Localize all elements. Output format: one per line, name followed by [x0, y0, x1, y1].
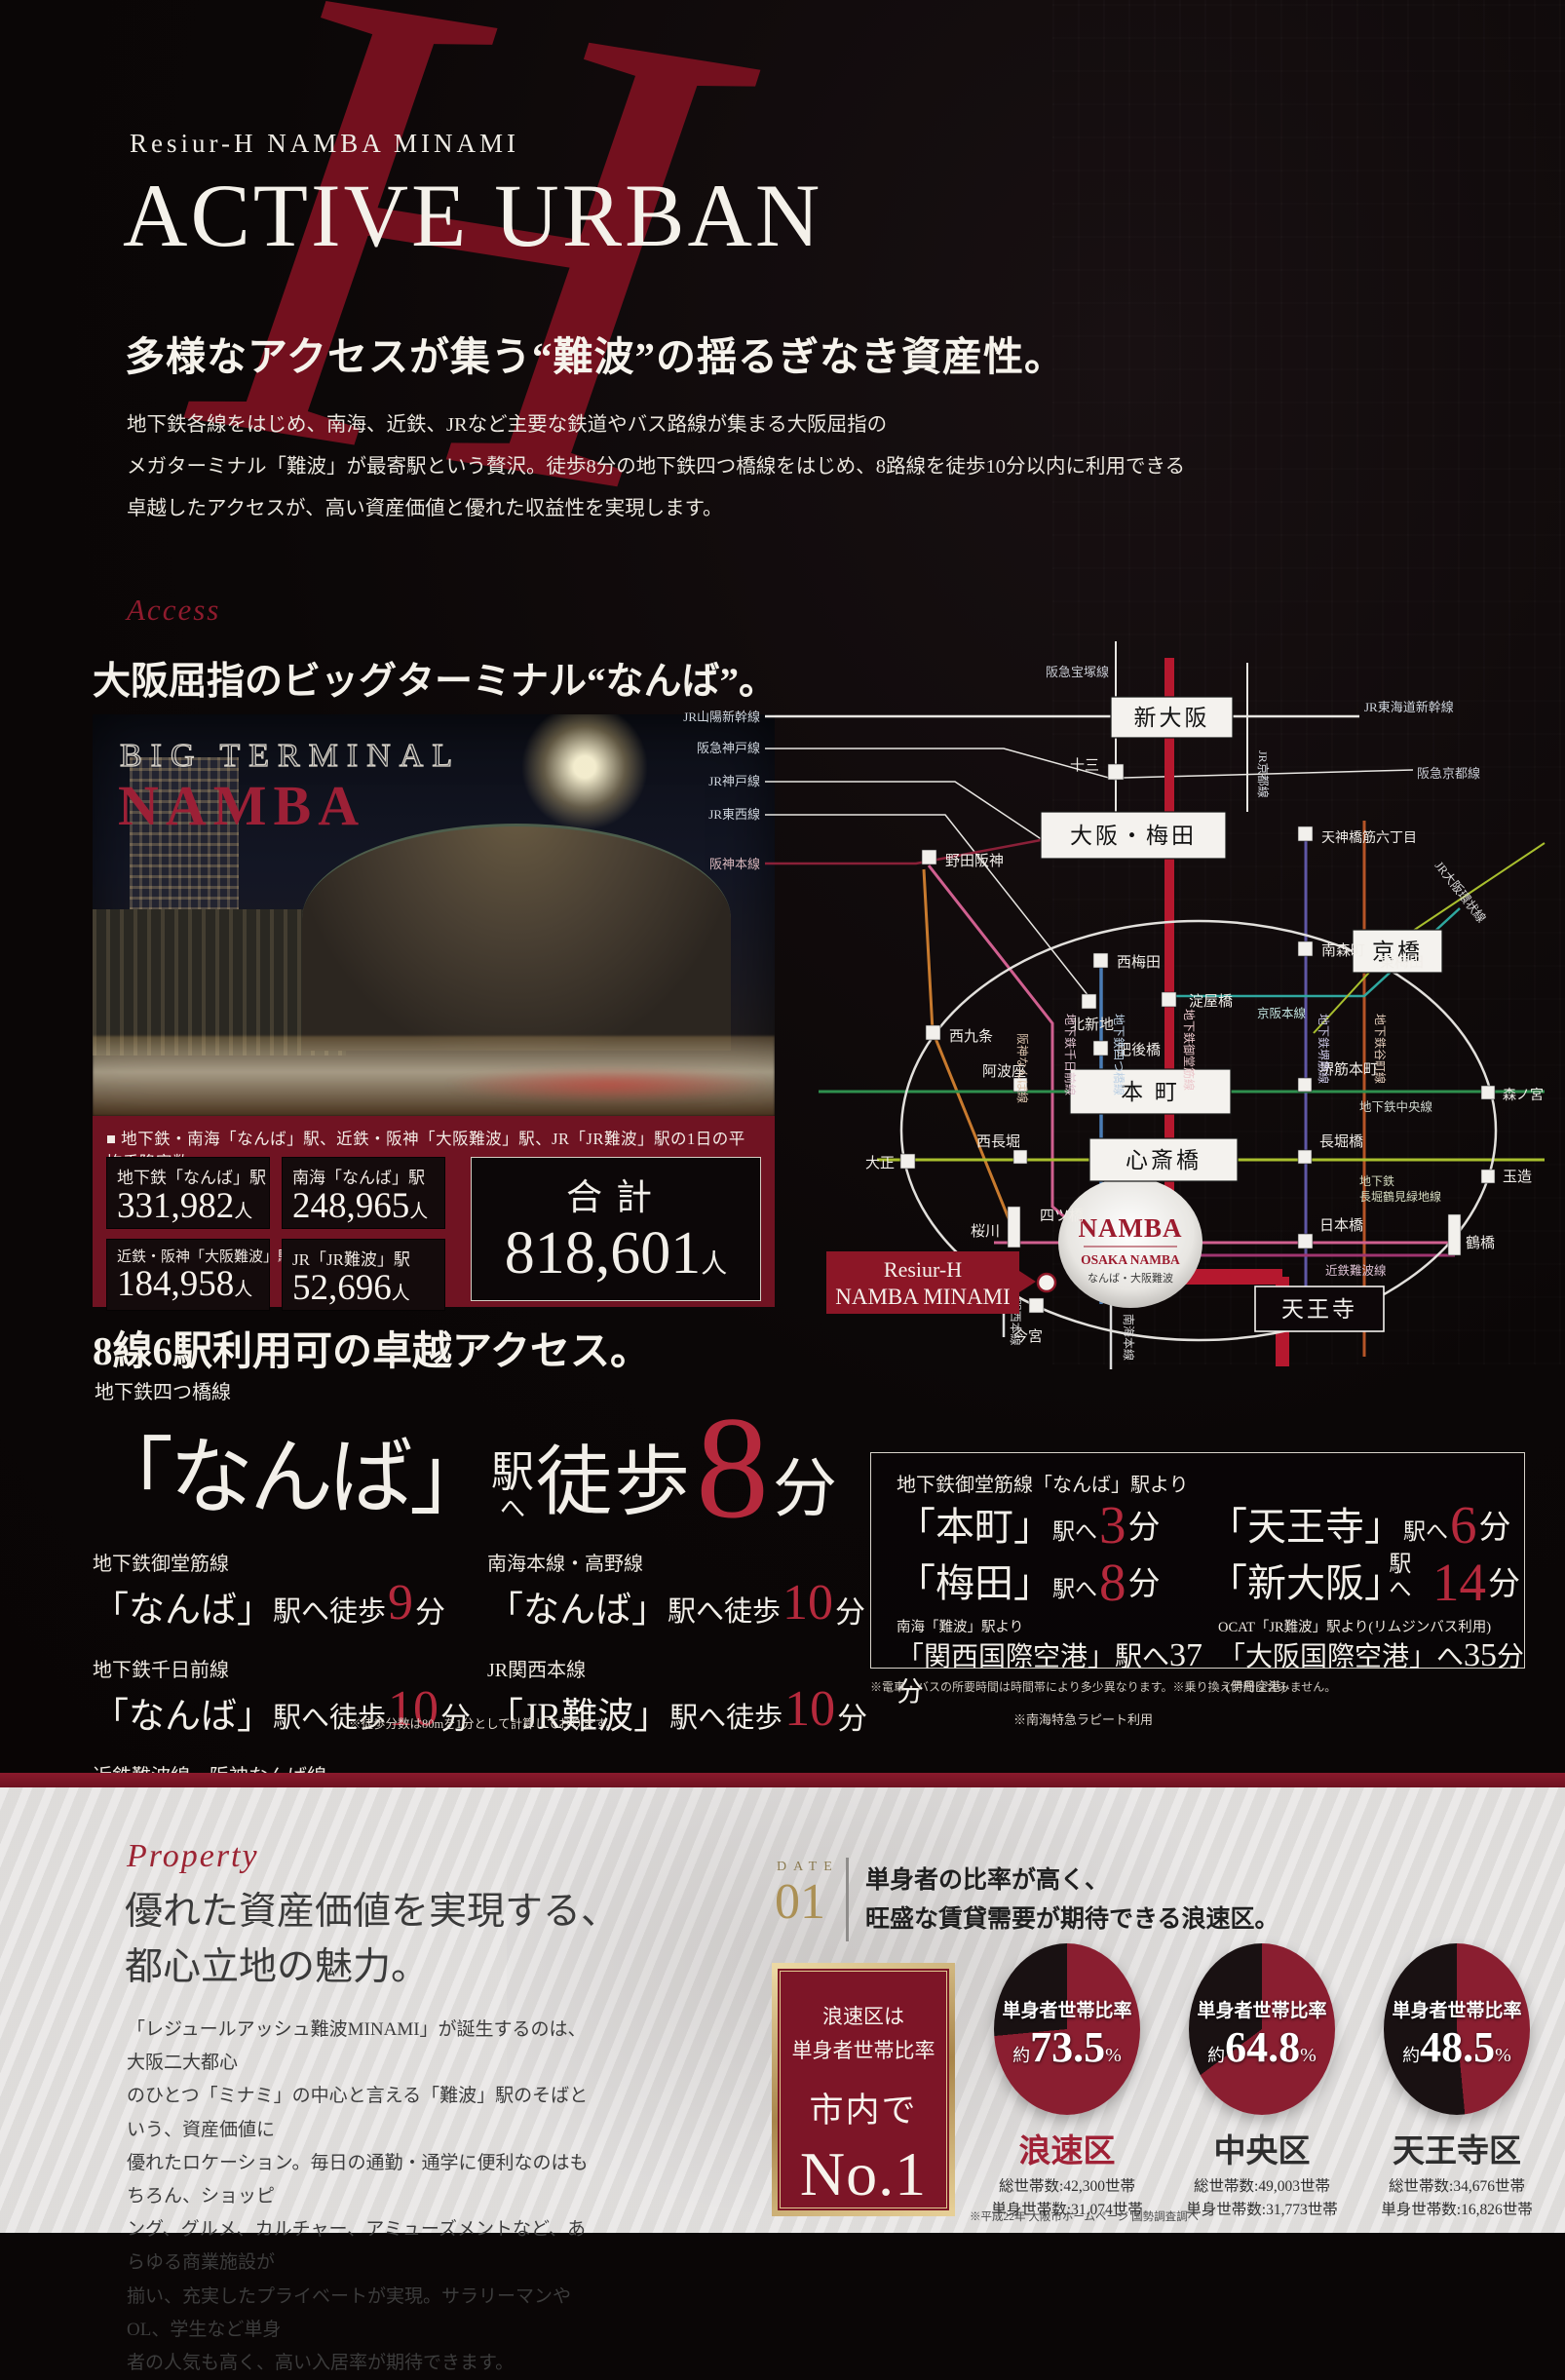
single-households: 単身世帯数:16,826世帯	[1381, 2202, 1532, 2218]
main-walk-toho: 徒歩	[536, 1421, 692, 1530]
svg-text:NAMBA MINAMI: NAMBA MINAMI	[835, 1285, 1011, 1309]
pie-value: 64.8	[1225, 2023, 1300, 2071]
pie-chart: 単身者世帯比率 約73.5%	[994, 1943, 1140, 2115]
walk-item-midosuji: 地下鉄御堂筋線 「なんば」駅へ徒歩9分	[93, 1548, 477, 1629]
svg-text:心斎橋: 心斎橋	[1126, 1148, 1202, 1172]
walk-note: ※徒歩分数は80mを1分として計算しております。	[349, 1713, 618, 1732]
total-households: 総世帯数:49,003世帯	[1194, 2178, 1330, 2195]
dest-min: 3	[1099, 1501, 1126, 1550]
dest-min: 8	[1099, 1558, 1126, 1607]
stat-value: 184,958	[117, 1264, 234, 1304]
svg-text:桜川: 桜川	[971, 1223, 1000, 1240]
svg-text:地下鉄堺筋線: 地下鉄堺筋線	[1317, 1014, 1331, 1084]
pie-naniwa: 単身者世帯比率 約73.5% 浪速区 総世帯数:42,300世帯単身世帯数:31…	[970, 1943, 1164, 2222]
svg-text:玉造: 玉造	[1503, 1169, 1532, 1185]
svg-text:新大阪: 新大阪	[1134, 706, 1210, 730]
main-walk-time: 「なんば」 駅 へ 徒歩 8 分	[90, 1364, 967, 1530]
airport-dest-wrap: 「関西国際空港」駅へ37分	[897, 1636, 1218, 1708]
airport-unit: 分	[1497, 1642, 1524, 1672]
pie-chuo: 単身者世帯比率 約64.8% 中央区 総世帯数:49,003世帯単身世帯数:31…	[1164, 1943, 1359, 2222]
pie-overlay: 単身者世帯比率 約64.8%	[1189, 1943, 1335, 2115]
district-name: 天王寺区	[1359, 2125, 1554, 2171]
main-walk-eki-he: 駅 へ	[491, 1451, 534, 1524]
stat-value-wrap: 184,958人	[117, 1266, 259, 1304]
dest-umeda: 「梅田」駅へ8分	[897, 1552, 1208, 1607]
walk-to: 駅へ徒歩	[669, 1705, 782, 1733]
stat-value: 52,696	[292, 1268, 392, 1308]
pie-approx: 約	[1402, 2046, 1420, 2065]
pie-approx: 約	[1012, 2046, 1030, 2065]
no1-line1: 浪速区は	[778, 2000, 949, 2034]
stat-nankai-namba: 南海「なんば」駅 248,965人	[282, 1157, 445, 1229]
svg-text:本 町: 本 町	[1121, 1080, 1180, 1104]
svg-text:地下鉄四つ橋線: 地下鉄四つ橋線	[1112, 1014, 1126, 1095]
pie-label: 単身者世帯比率	[1197, 1996, 1326, 2022]
svg-text:南海本線: 南海本線	[1122, 1314, 1136, 1361]
svg-text:近鉄難波線: 近鉄難波線	[1325, 1263, 1387, 1278]
no1-line2: 単身者世帯比率	[778, 2034, 949, 2068]
airport-dest: 「大阪国際空港」へ	[1218, 1642, 1464, 1672]
dest-tennoji: 「天王寺」駅へ6分	[1208, 1501, 1520, 1550]
svg-text:OSAKA NAMBA: OSAKA NAMBA	[1081, 1252, 1180, 1267]
walk-line: 地下鉄御堂筋線	[93, 1548, 477, 1576]
walk-line: 地下鉄千日前線	[93, 1654, 477, 1682]
rail-map: NAMBAOSAKA NAMBAなんば・大阪難波新大阪大阪・梅田京橋本 町心斎橋…	[585, 604, 1559, 1374]
pie-label: 単身者世帯比率	[1002, 1996, 1131, 2022]
stat-unit: 人	[234, 1202, 252, 1222]
photo-label-namba: NAMBA	[118, 773, 365, 838]
svg-text:十三: 十三	[1070, 757, 1099, 774]
panel-airports: 南海「難波」駅より 「関西国際空港」駅へ37分 ※南海特急ラピート利用 OCAT…	[897, 1616, 1499, 1727]
stat-unit: 人	[409, 1202, 428, 1222]
stat-jr-namba: JR「JR難波」駅 52,696人	[282, 1239, 445, 1311]
script-h-glyph: H	[158, 0, 794, 642]
dest-name: 「梅田」	[897, 1561, 1052, 1606]
pie-chart: 単身者世帯比率 約48.5%	[1384, 1943, 1530, 2115]
svg-text:Resiur-H: Resiur-H	[884, 1257, 962, 1282]
svg-text:阪神なんば線: 阪神なんば線	[1015, 1033, 1030, 1103]
airport-dest: 「関西国際空港」駅へ	[897, 1642, 1169, 1672]
walk-station: 「なんば」	[93, 1699, 273, 1735]
airport-itami: OCAT「JR難波」駅より(リムジンバス利用) 「大阪国際空港」へ35分 (伊丹…	[1218, 1616, 1540, 1727]
svg-text:鶴橋: 鶴橋	[1466, 1235, 1495, 1251]
main-walk-he: へ	[500, 1494, 525, 1524]
svg-text:阪急神戸線: 阪急神戸線	[697, 741, 760, 755]
walk-station: 「なんば」	[487, 1593, 668, 1629]
svg-text:JR山陽新幹線: JR山陽新幹線	[683, 710, 760, 724]
svg-text:天王寺: 天王寺	[1281, 1297, 1357, 1322]
svg-text:JR大阪環状線: JR大阪環状線	[1432, 859, 1490, 926]
panel-from: 地下鉄御堂筋線「なんば」駅より	[897, 1469, 1499, 1497]
stat-kintetsu-hanshin: 近鉄・阪神「大阪難波」駅 184,958人	[106, 1239, 270, 1311]
headline: 多様なアクセスが集う“難波”の揺るぎなき資産性。	[125, 324, 1065, 382]
property-heading: 優れた資産価値を実現する、 都心立地の魅力。	[125, 1885, 619, 1995]
walk-min: 10	[784, 1684, 835, 1735]
svg-text:なんば・大阪難波: なんば・大阪難波	[1088, 1271, 1173, 1285]
svg-text:淀屋橋: 淀屋橋	[1189, 993, 1233, 1010]
photo-label-big-terminal: BIG TERMINAL	[120, 738, 461, 775]
walk-unit: 分	[835, 1597, 865, 1628]
svg-text:地下鉄: 地下鉄	[1359, 1173, 1394, 1188]
airport-min: 37	[1169, 1637, 1202, 1673]
svg-text:阪急京都線: 阪急京都線	[1417, 766, 1480, 781]
total-households: 総世帯数:42,300世帯	[999, 2178, 1135, 2195]
dest-shin-osaka: 「新大阪」駅へ14分	[1208, 1552, 1520, 1607]
svg-text:JR東西線: JR東西線	[708, 807, 760, 822]
stat-unit: 人	[234, 1280, 252, 1300]
dest-min: 6	[1450, 1501, 1477, 1550]
svg-text:JR神戸線: JR神戸線	[708, 774, 760, 788]
walk-unit: 分	[415, 1597, 445, 1628]
pie-chart: 単身者世帯比率 約64.8%	[1189, 1943, 1335, 2115]
airport-min: 35	[1464, 1637, 1497, 1673]
svg-text:JR京都線: JR京都線	[1256, 750, 1271, 798]
dest-eki: 駅へ	[1389, 1552, 1431, 1603]
svg-text:日本橋: 日本橋	[1319, 1217, 1363, 1234]
no1-line3: 市内で	[778, 2083, 949, 2132]
stat-label: 地下鉄「なんば」駅	[117, 1164, 259, 1188]
date-divider-rule	[846, 1858, 849, 1941]
svg-text:京阪本線: 京阪本線	[1257, 1006, 1307, 1020]
walk-min: 9	[388, 1578, 413, 1629]
pie-tennoji: 単身者世帯比率 約48.5% 天王寺区 総世帯数:34,676世帯単身世帯数:1…	[1359, 1943, 1554, 2222]
panel-destinations: 「本町」駅へ3分 「天王寺」駅へ6分 「梅田」駅へ8分 「新大阪」駅へ14分	[897, 1501, 1499, 1606]
svg-text:地下鉄千日前線: 地下鉄千日前線	[1063, 1014, 1078, 1095]
walk-min: 10	[782, 1578, 833, 1629]
stat-label: 南海「なんば」駅	[292, 1164, 435, 1188]
airport-from: 南海「難波」駅より	[897, 1616, 1218, 1636]
pie-percent: %	[1105, 2045, 1122, 2066]
dest-name: 「新大阪」	[1208, 1561, 1389, 1606]
walk-to: 駅へ徒歩	[273, 1598, 386, 1627]
svg-text:長堀橋: 長堀橋	[1319, 1133, 1363, 1150]
stat-label: 近鉄・阪神「大阪難波」駅	[117, 1246, 259, 1266]
svg-text:地下鉄中央線: 地下鉄中央線	[1359, 1099, 1433, 1114]
stat-unit: 人	[392, 1284, 410, 1304]
pie-percent: %	[1495, 2045, 1511, 2066]
svg-text:野田阪神: 野田阪神	[945, 853, 1004, 869]
access-script-label: Access	[127, 593, 220, 628]
property-script-label: Property	[127, 1838, 259, 1875]
district-name: 中央区	[1164, 2125, 1359, 2171]
svg-text:大阪・梅田: 大阪・梅田	[1070, 824, 1197, 848]
property-body: 「レジュールアッシュ難波MINAMI」が誕生するのは、大阪二大都心 のひとつ「ミ…	[127, 2014, 592, 2380]
single-households: 単身世帯数:31,773世帯	[1186, 2202, 1337, 2218]
airport-from: OCAT「JR難波」駅より(リムジンバス利用)	[1218, 1616, 1540, 1636]
date-number: 01	[775, 1873, 825, 1931]
page-title: ACTIVE URBAN	[123, 164, 822, 267]
rail-map-svg: NAMBAOSAKA NAMBAなんば・大阪難波新大阪大阪・梅田京橋本 町心斎橋…	[585, 604, 1559, 1374]
main-walk-station: 「なんば」	[90, 1408, 489, 1530]
no1-line4: No.1	[778, 2138, 949, 2210]
svg-text:西梅田: 西梅田	[1117, 954, 1161, 971]
svg-text:NAMBA: NAMBA	[1079, 1213, 1183, 1243]
svg-text:大正: 大正	[865, 1155, 895, 1171]
date-heading: 単身者の比率が高く、 旺盛な賃貸需要が期待できる浪速区。	[865, 1862, 1279, 1939]
airport-dest-wrap: 「大阪国際空港」へ35分	[1218, 1636, 1540, 1676]
stat-value: 248,965	[292, 1186, 409, 1226]
svg-text:西長堀: 西長堀	[976, 1133, 1020, 1150]
svg-text:西九条: 西九条	[949, 1028, 993, 1045]
pie-overlay: 単身者世帯比率 約48.5%	[1384, 1943, 1530, 2115]
walk-to: 駅へ徒歩	[668, 1598, 781, 1627]
property-section: Property 優れた資産価値を実現する、 都心立地の魅力。 「レジュールアッ…	[0, 1787, 1565, 2233]
stat-value: 331,982	[117, 1186, 234, 1226]
airport-note: ※南海特急ラピート利用	[1013, 1709, 1218, 1728]
dest-name: 「天王寺」	[1208, 1505, 1403, 1550]
svg-text:JR東海道新幹線: JR東海道新幹線	[1364, 700, 1454, 714]
svg-text:東梅田: 東梅田	[1380, 954, 1424, 971]
pie-percent: %	[1300, 2045, 1317, 2066]
dest-unit: 分	[1488, 1567, 1520, 1604]
svg-text:四ツ橋: 四ツ橋	[1040, 1208, 1084, 1224]
dest-eki: 駅へ	[1052, 1577, 1097, 1602]
walk-unit: 分	[837, 1704, 867, 1734]
pie-value: 48.5	[1420, 2023, 1495, 2071]
main-walk-minutes: 8	[696, 1406, 769, 1531]
svg-text:阪神本線: 阪神本線	[709, 857, 760, 871]
ridership-grid: 地下鉄「なんば」駅 331,982人 南海「なんば」駅 248,965人 近鉄・…	[106, 1157, 449, 1311]
red-divider	[0, 1773, 1565, 1787]
destination-panel: 地下鉄御堂筋線「なんば」駅より 「本町」駅へ3分 「天王寺」駅へ6分 「梅田」駅…	[870, 1452, 1525, 1669]
svg-text:天神橋筋六丁目: 天神橋筋六丁目	[1321, 829, 1417, 846]
walk-station: 「なんば」	[93, 1593, 273, 1629]
airport-kansai: 南海「難波」駅より 「関西国際空港」駅へ37分 ※南海特急ラピート利用	[897, 1616, 1218, 1727]
district-stats: 総世帯数:34,676世帯単身世帯数:16,826世帯	[1359, 2175, 1554, 2222]
dest-unit: 分	[1128, 1511, 1161, 1548]
district-name: 浪速区	[970, 2125, 1164, 2171]
pie-approx: 約	[1207, 2046, 1225, 2065]
svg-text:長堀鶴見緑地線: 長堀鶴見緑地線	[1359, 1189, 1441, 1204]
pie-label: 単身者世帯比率	[1392, 1996, 1521, 2022]
dest-eki: 駅へ	[1403, 1519, 1448, 1545]
district-pie-charts: 単身者世帯比率 約73.5% 浪速区 総世帯数:42,300世帯単身世帯数:31…	[970, 1943, 1554, 2222]
svg-text:森ノ宮: 森ノ宮	[1503, 1088, 1544, 1103]
dest-unit: 分	[1479, 1511, 1511, 1548]
panel-footnote: ※電車・バスの所要時間は時間帯により多少異なります。※乗り換え時間は含みません。	[870, 1678, 1336, 1695]
svg-text:地下鉄御堂筋線: 地下鉄御堂筋線	[1182, 1009, 1197, 1091]
svg-text:南森町: 南森町	[1321, 942, 1365, 959]
stat-label: JR「JR難波」駅	[292, 1246, 435, 1270]
census-footnote: ※平成22年 大阪市ホームページ 国勢調査調べ	[970, 2208, 1199, 2224]
brand-name: Resiur-H NAMBA MINAMI	[130, 129, 519, 159]
pie-overlay: 単身者世帯比率 約73.5%	[994, 1943, 1140, 2115]
top-section: H Resiur-H NAMBA MINAMI ACTIVE URBAN 多様な…	[0, 0, 1565, 1773]
dest-eki: 駅へ	[1052, 1519, 1097, 1545]
total-households: 総世帯数:34,676世帯	[1389, 2178, 1525, 2195]
dest-honmachi: 「本町」駅へ3分	[897, 1501, 1208, 1550]
pie-value: 73.5	[1030, 2023, 1105, 2071]
main-walk-unit: 分	[773, 1437, 837, 1530]
dest-name: 「本町」	[897, 1505, 1052, 1550]
svg-text:阪急宝塚線: 阪急宝塚線	[1046, 665, 1109, 679]
dest-unit: 分	[1128, 1567, 1161, 1604]
dest-min: 14	[1432, 1558, 1486, 1607]
no1-box: 浪速区は 単身者世帯比率 市内で No.1	[772, 1963, 955, 2216]
lead-paragraph: 地下鉄各線をはじめ、南海、近鉄、JRなど主要な鉄道やバス路線が集まる大阪屈指の …	[127, 404, 1277, 530]
stat-subway-namba: 地下鉄「なんば」駅 331,982人	[106, 1157, 270, 1229]
main-walk-eki: 駅	[491, 1451, 534, 1494]
svg-text:地下鉄谷町線: 地下鉄谷町線	[1373, 1014, 1388, 1084]
